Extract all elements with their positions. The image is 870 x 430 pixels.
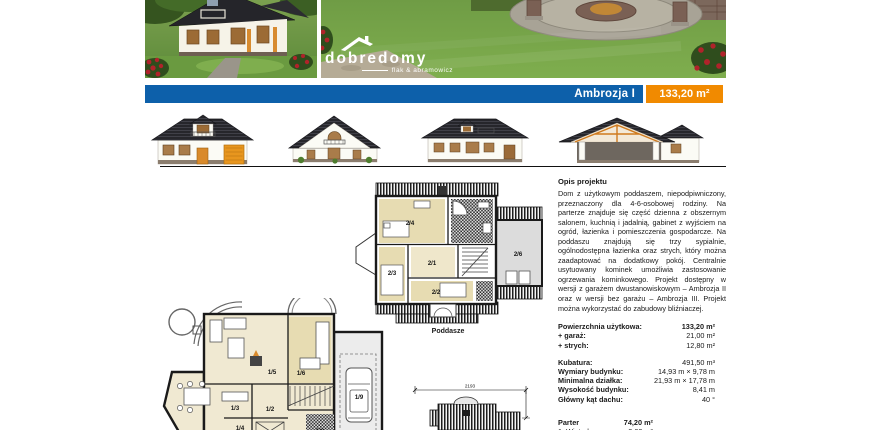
specs-list: Powierzchnia użytkowa: 133,20 m² + garaż…: [558, 322, 726, 404]
ground-floor-plan: 1/5 1/6 1/3 1/2 1/9 1/8 1/4: [160, 298, 386, 430]
room-label: 2/4: [406, 221, 415, 227]
spec-row: Powierzchnia użytkowa: 133,20 m²: [558, 322, 726, 331]
room-label: 1/9: [355, 395, 364, 401]
description-heading: Opis projektu: [558, 177, 726, 186]
rose-bush: [289, 54, 313, 70]
room-label: 2/2: [432, 290, 441, 296]
brand-logo: dobredomy flak & abramowicz: [325, 34, 453, 74]
area-badge: 133,20 m²: [646, 85, 723, 103]
photo-house-exterior: [145, 0, 317, 78]
room-label: 1/3: [231, 406, 240, 412]
room-label: 1/4: [236, 426, 245, 430]
brand-tagline: flak & abramowicz: [392, 67, 453, 74]
room-label: 1/2: [266, 407, 275, 413]
project-title: Ambrozja I: [574, 88, 635, 100]
brand-name: dobredomy: [325, 51, 453, 66]
room-label: 2/3: [388, 271, 397, 277]
rooms-table: Parter 74,20 m² 1. Wiatrołap 3,00 m²: [558, 418, 653, 430]
catalog-page: dobredomy flak & abramowicz Ambrozja I 1…: [0, 0, 870, 430]
elevation-front: [150, 112, 255, 167]
right-column: Opis projektu Dom z użytkowym poddaszem,…: [558, 177, 726, 430]
area-value: 133,20 m²: [659, 88, 709, 100]
room-label: 1/6: [297, 371, 306, 377]
spec-row: + garaż: 21,00 m²: [558, 331, 726, 340]
room-label: 2/1: [428, 261, 437, 267]
roof-icon: [339, 34, 383, 51]
spec-row: Wysokość budynku: 8,41 m: [558, 385, 726, 394]
elevation-ground-line: [160, 166, 726, 167]
spec-row: Kubatura: 491,50 m³: [558, 358, 726, 367]
spec-row: Główny kąt dachu: 40 °: [558, 395, 726, 404]
elevation-side-right: [555, 112, 705, 167]
logo-rule: [362, 70, 388, 71]
room-label: 2/6: [514, 252, 523, 258]
spec-row: Minimalna działka: 21,93 m × 17,78 m: [558, 376, 726, 385]
room-label: 1/5: [268, 370, 277, 376]
floor-header: Parter 74,20 m²: [558, 418, 653, 427]
spec-row: + strych: 12,80 m²: [558, 341, 726, 350]
description-body: Dom z użytkowym poddaszem, niepodpiwnicz…: [558, 189, 726, 313]
elevation-side-left: [287, 112, 382, 167]
spec-row: Wymiary budynku: 14,93 m × 9,78 m: [558, 367, 726, 376]
elevation-rear: [420, 112, 530, 167]
site-dim-label: 2193: [465, 384, 476, 389]
site-plan: 2193: [408, 380, 533, 430]
title-bar: Ambrozja I: [145, 85, 643, 103]
spacer: [558, 350, 726, 358]
